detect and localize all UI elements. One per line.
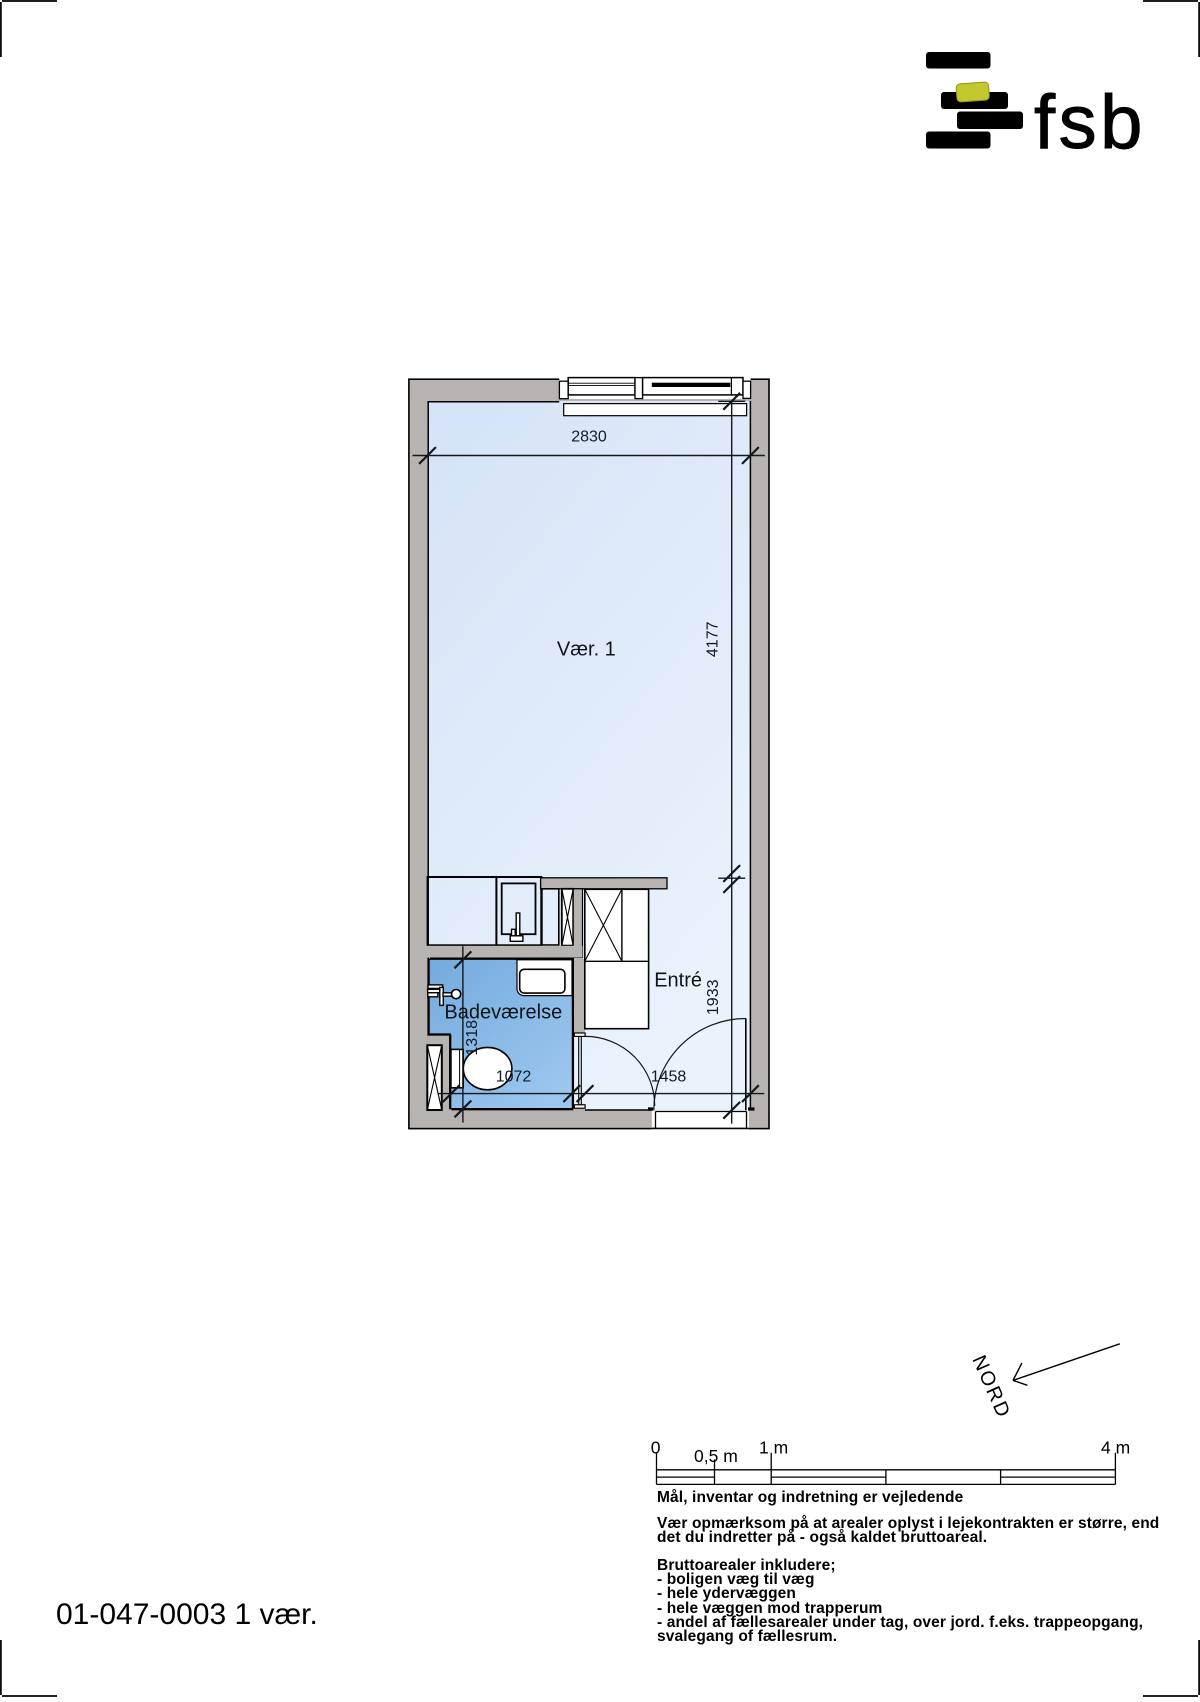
svg-text:Vær. 1: Vær. 1	[557, 639, 616, 661]
svg-text:2830: 2830	[571, 429, 607, 446]
svg-text:1 m: 1 m	[759, 1438, 788, 1458]
svg-text:1072: 1072	[496, 1069, 532, 1086]
svg-text:1933: 1933	[705, 979, 722, 1015]
svg-text:Badeværelse: Badeværelse	[444, 1002, 562, 1024]
svg-text:0,5 m: 0,5 m	[694, 1446, 738, 1466]
svg-text:1318: 1318	[464, 1020, 481, 1056]
svg-text:Entré: Entré	[654, 969, 702, 991]
svg-text:4177: 4177	[705, 621, 722, 657]
svg-text:1458: 1458	[651, 1069, 687, 1086]
svg-text:NORD: NORD	[967, 1352, 1014, 1422]
svg-text:0: 0	[651, 1438, 661, 1458]
svg-text:fsb: fsb	[1034, 80, 1146, 165]
svg-text:4 m: 4 m	[1101, 1438, 1130, 1458]
